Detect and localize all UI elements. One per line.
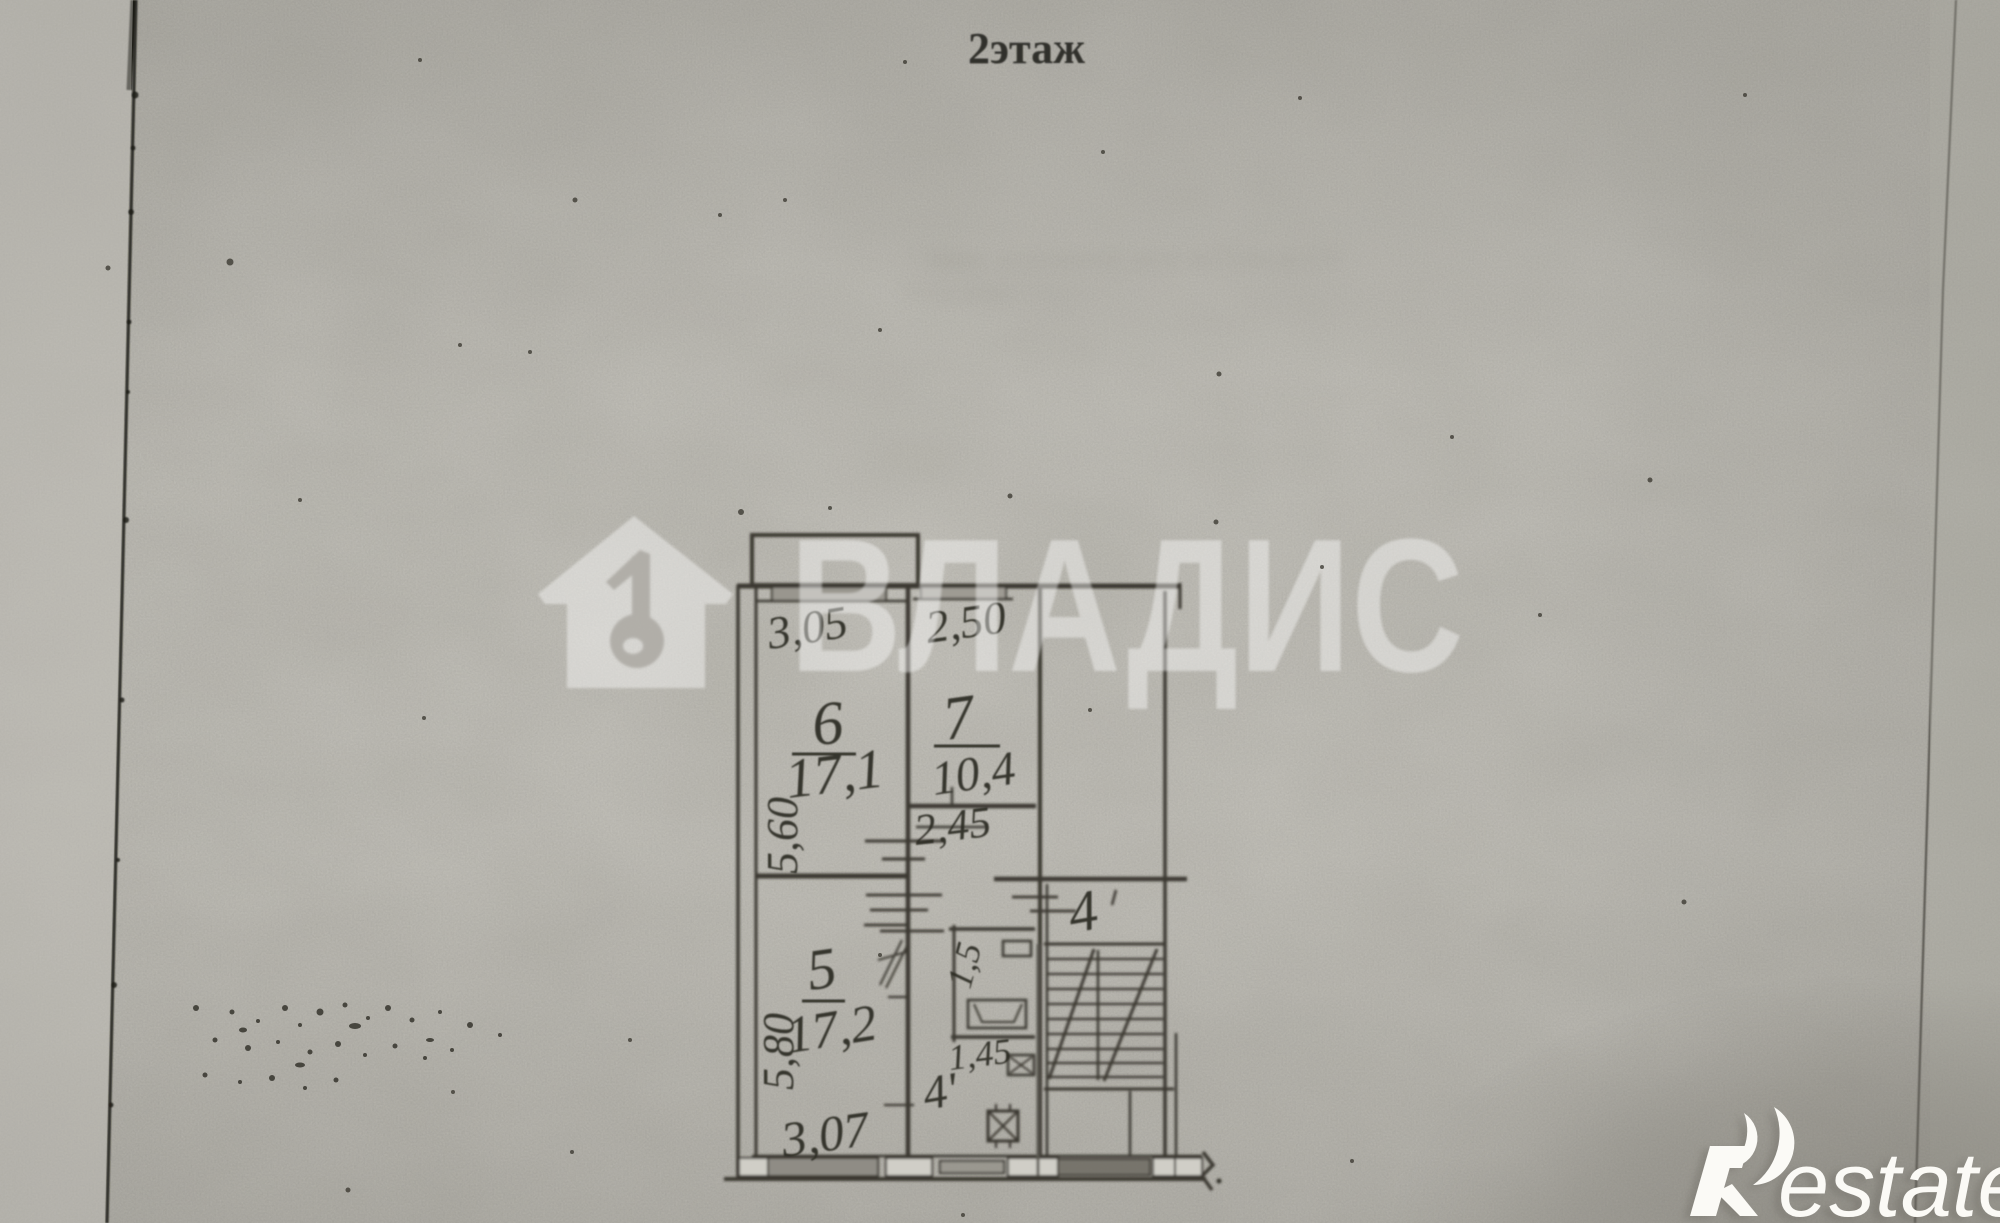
svg-text:5,80: 5,80 [754, 1013, 803, 1090]
svg-text:5,60: 5,60 [758, 797, 807, 874]
svg-text:2этаж: 2этаж [968, 24, 1085, 73]
svg-text:1,45: 1,45 [946, 1031, 1013, 1078]
svg-text:estate: estate [1778, 1134, 2000, 1223]
svg-text:2,45: 2,45 [911, 797, 993, 855]
svg-text:ыне апвмиюе нга жПзвск гУ: ыне апвмиюе нга жПзвск гУ [930, 239, 1344, 276]
svg-text:ротд апво: ротд апво [900, 276, 1015, 307]
svg-text:ВЛАДИС: ВЛАДИС [789, 500, 1464, 712]
